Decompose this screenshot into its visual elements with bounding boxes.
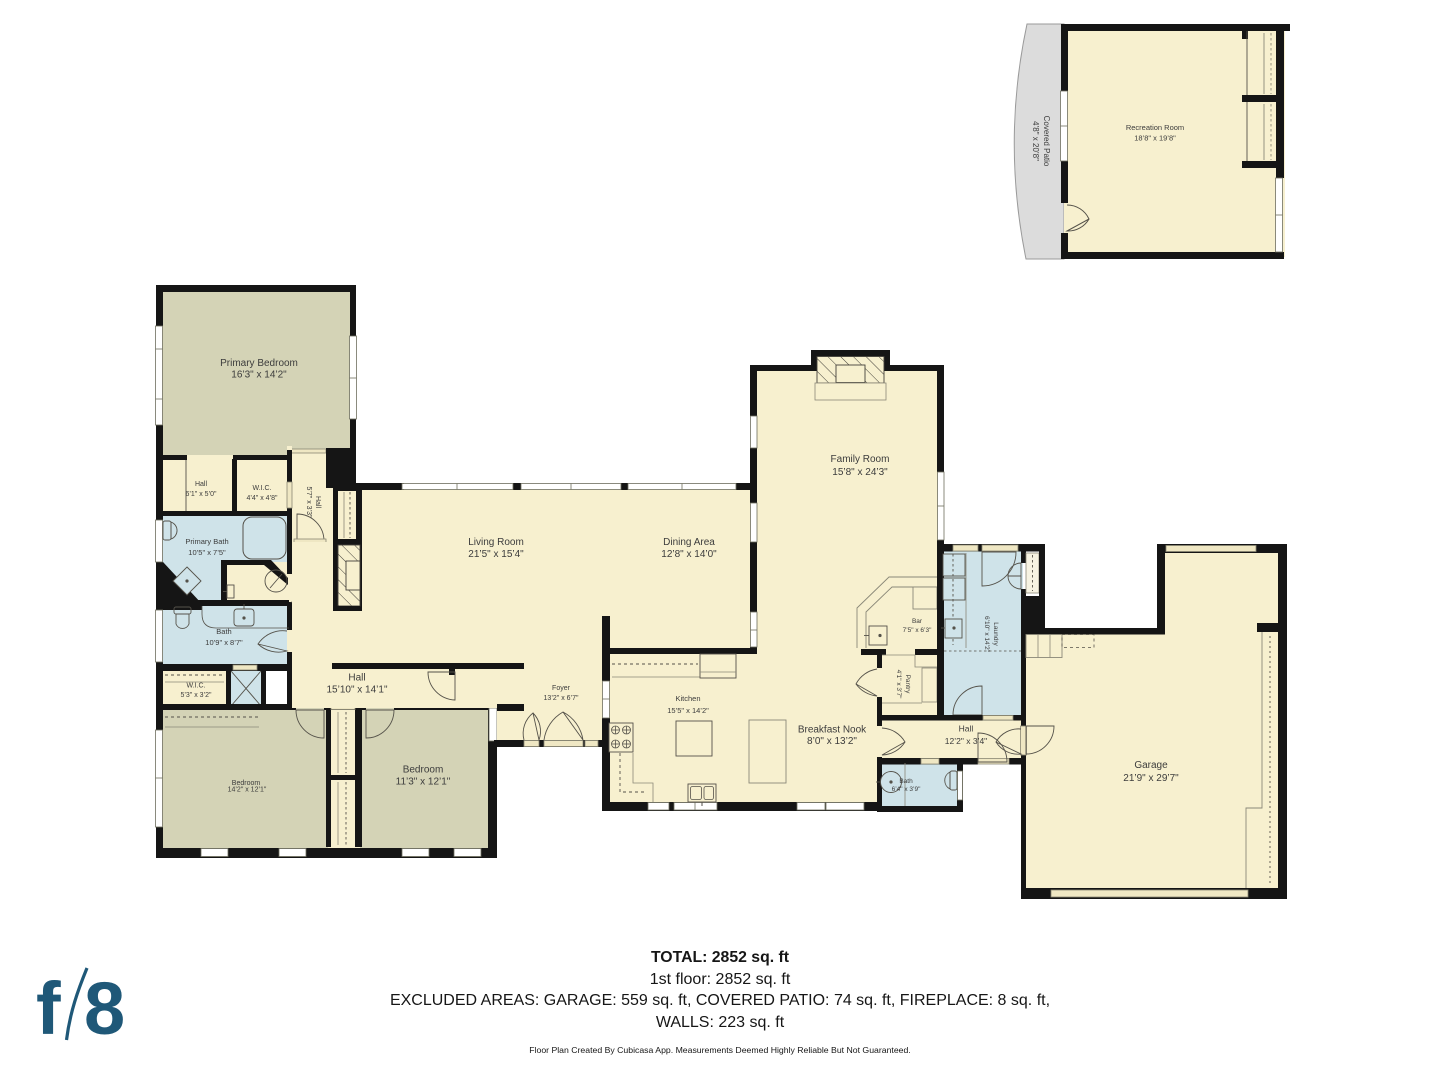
svg-text:15’10" x 14’1": 15’10" x 14’1" [326,685,387,696]
svg-text:4’8" x 20’8": 4’8" x 20’8" [1031,121,1040,161]
svg-text:Foyer: Foyer [552,685,571,692]
svg-text:Bath: Bath [899,778,913,785]
svg-text:6’10" x 14’2": 6’10" x 14’2" [983,616,990,653]
svg-text:10’5" x 7’5": 10’5" x 7’5" [188,548,226,557]
svg-text:14’2" x 12’1": 14’2" x 12’1" [228,787,267,794]
svg-text:Primary Bath: Primary Bath [185,537,228,546]
svg-text:10’9" x 8’7": 10’9" x 8’7" [205,638,243,647]
svg-text:4’4" x 4’8": 4’4" x 4’8" [246,495,278,502]
svg-text:13’2" x 6’7": 13’2" x 6’7" [544,695,579,702]
svg-text:7’5" x 6’3": 7’5" x 6’3" [903,627,933,634]
svg-text:Family Room: Family Room [831,454,890,465]
svg-text:EXCLUDED AREAS: GARAGE: 559 sq: EXCLUDED AREAS: GARAGE: 559 sq. ft, COVE… [390,992,1050,1009]
svg-text:16’3" x 14’2": 16’3" x 14’2" [231,370,287,381]
svg-text:21’9" x 29’7": 21’9" x 29’7" [1123,773,1179,784]
svg-text:1st floor: 2852 sq. ft: 1st floor: 2852 sq. ft [650,971,791,988]
svg-text:TOTAL: 2852 sq. ft: TOTAL: 2852 sq. ft [651,949,790,966]
svg-text:15’5" x 14’2": 15’5" x 14’2" [667,706,709,715]
svg-text:Covered Patio: Covered Patio [1042,116,1051,167]
svg-text:WALLS: 223 sq. ft: WALLS: 223 sq. ft [656,1014,785,1031]
svg-text:18’8" x 19’8": 18’8" x 19’8" [1134,134,1176,143]
svg-text:Bedroom: Bedroom [403,765,444,776]
svg-text:Recreation Room: Recreation Room [1126,123,1184,132]
svg-text:6’1" x 5’0": 6’1" x 5’0" [185,491,217,498]
svg-text:6’4" x 3’9": 6’4" x 3’9" [892,786,922,793]
svg-text:4’1" x 3’7": 4’1" x 3’7" [895,670,902,700]
svg-text:Kitchen: Kitchen [675,694,700,703]
svg-text:Bath: Bath [216,627,231,636]
svg-text:Laundry: Laundry [992,622,999,646]
svg-text:5’7" x 3’3": 5’7" x 3’3" [305,486,312,518]
svg-text:11’3" x 12’1": 11’3" x 12’1" [396,777,451,788]
svg-text:15’8" x 24’3": 15’8" x 24’3" [832,467,888,478]
svg-text:Bar: Bar [912,618,923,625]
svg-text:Garage: Garage [1134,760,1168,771]
svg-text:21’5" x 15’4": 21’5" x 15’4" [468,549,524,560]
svg-text:Breakfast Nook: Breakfast Nook [798,725,867,736]
svg-text:Living Room: Living Room [468,537,524,548]
svg-text:Hall: Hall [348,673,365,684]
svg-text:Dining Area: Dining Area [663,537,715,548]
svg-text:Hall: Hall [314,496,321,509]
svg-text:12’8" x 14’0": 12’8" x 14’0" [661,549,717,560]
svg-text:Primary Bedroom: Primary Bedroom [220,358,298,369]
svg-text:Pantry: Pantry [904,675,911,695]
svg-text:W.I.C.: W.I.C. [252,485,271,492]
svg-text:Hall: Hall [959,724,974,734]
svg-text:8’0" x 13’2": 8’0" x 13’2" [807,736,857,747]
svg-text:12’2" x 3’4": 12’2" x 3’4" [945,736,987,746]
svg-text:W.I.C.: W.I.C. [186,683,205,690]
svg-text:Floor Plan Created By Cubicasa: Floor Plan Created By Cubicasa App. Meas… [529,1045,910,1055]
svg-text:5’3" x 3’2": 5’3" x 3’2" [180,692,212,699]
svg-text:8: 8 [84,967,125,1050]
svg-text:f: f [36,967,61,1050]
svg-text:Hall: Hall [195,481,208,488]
